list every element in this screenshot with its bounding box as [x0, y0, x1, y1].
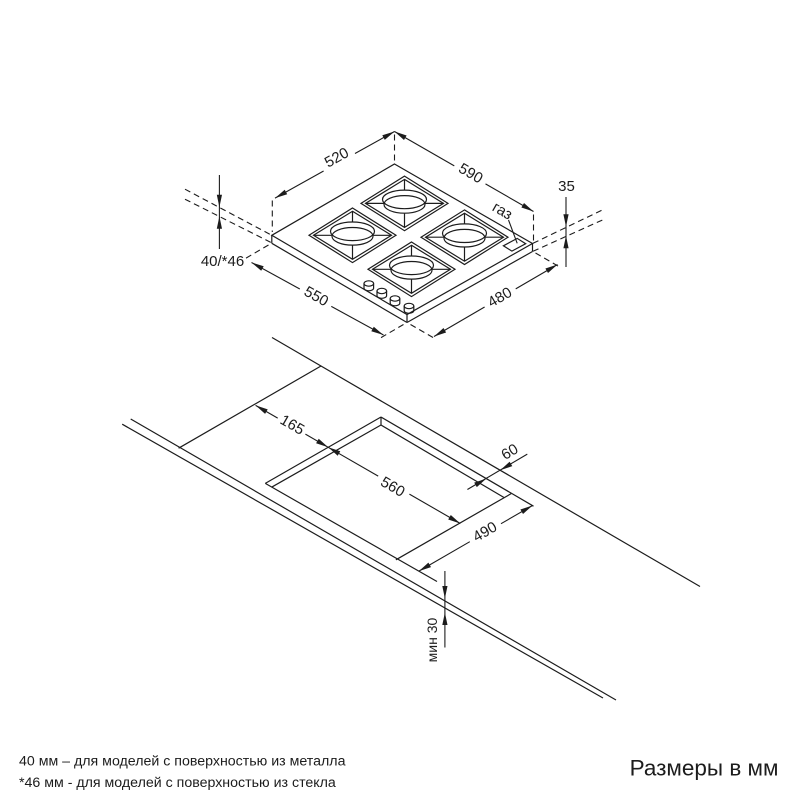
svg-text:40/*46: 40/*46 — [201, 253, 244, 270]
svg-text:40 мм – для моделей с поверхно: 40 мм – для моделей с поверхностью из ме… — [19, 754, 346, 770]
svg-text:35: 35 — [558, 178, 575, 195]
svg-text:Размеры в мм: Размеры в мм — [630, 756, 779, 781]
svg-text:мин 30: мин 30 — [424, 617, 440, 662]
svg-text:*46 мм - для моделей с поверхн: *46 мм - для моделей с поверхностью из с… — [19, 775, 336, 791]
